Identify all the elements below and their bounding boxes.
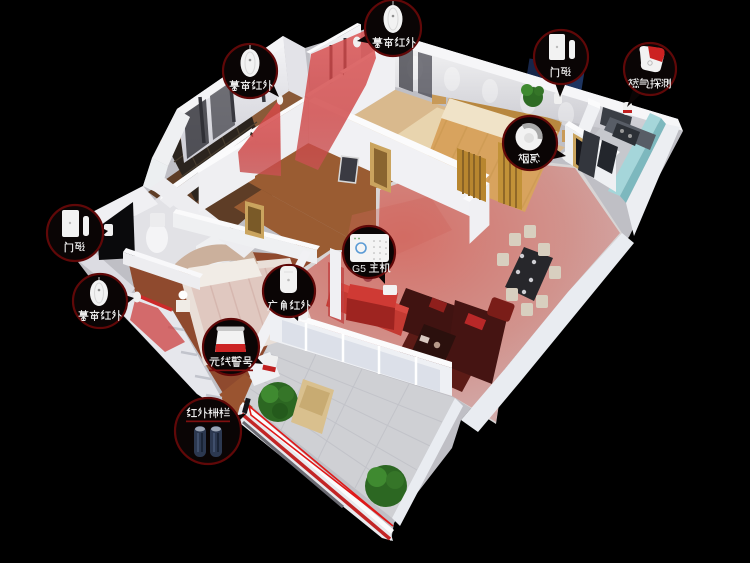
svg-text:G5: G5 — [352, 263, 366, 275]
